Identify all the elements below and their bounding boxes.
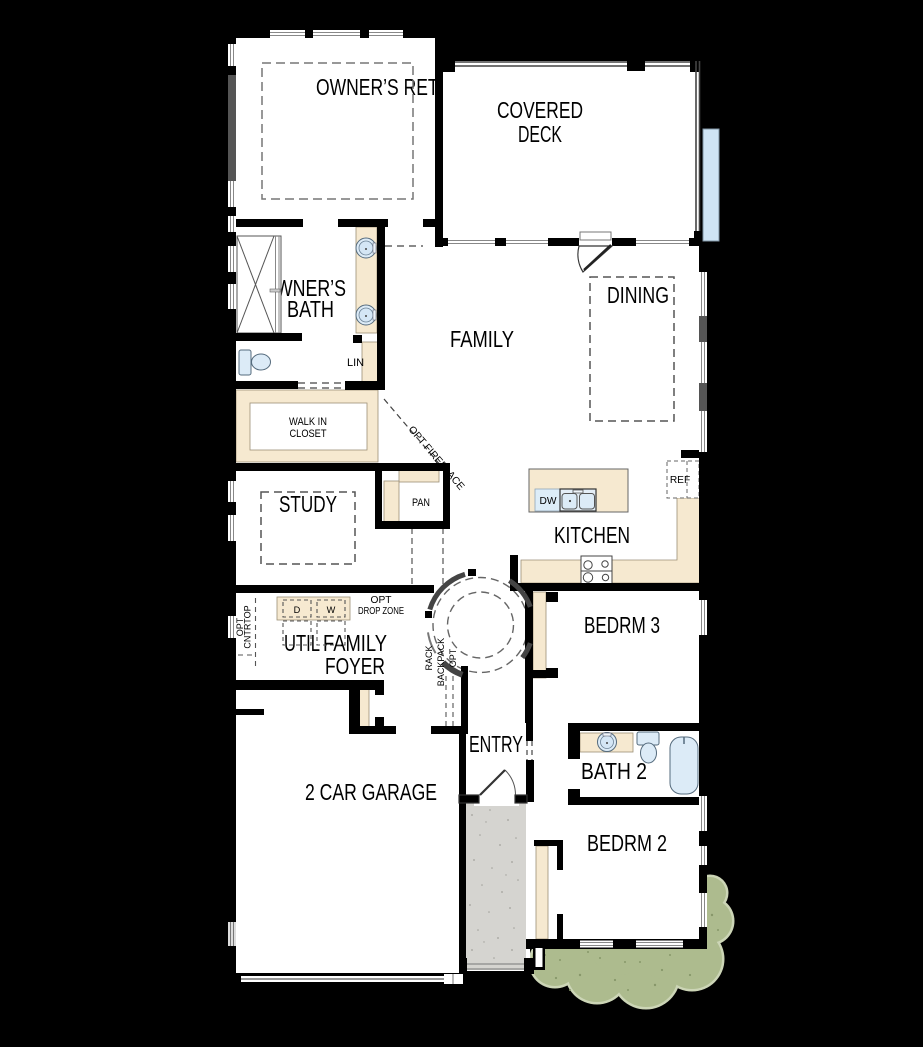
svg-text:DW: DW: [540, 496, 557, 507]
svg-text:DINING: DINING: [607, 282, 669, 308]
svg-text:CLOSET: CLOSET: [290, 428, 327, 440]
svg-text:OPT: OPT: [448, 648, 458, 667]
svg-text:D: D: [294, 605, 301, 615]
svg-text:DROP ZONE: DROP ZONE: [358, 606, 404, 617]
svg-text:DECK: DECK: [518, 121, 562, 147]
svg-text:KITCHEN: KITCHEN: [554, 522, 630, 548]
svg-text:FOYER: FOYER: [325, 653, 385, 679]
svg-text:BEDRM 3: BEDRM 3: [584, 612, 660, 638]
svg-text:PAN: PAN: [412, 497, 430, 509]
svg-text:LIN: LIN: [347, 357, 364, 369]
svg-text:REF: REF: [670, 475, 690, 486]
svg-text:BATH: BATH: [287, 296, 334, 322]
svg-text:OPT: OPT: [371, 595, 392, 606]
svg-text:FAMILY: FAMILY: [450, 326, 514, 352]
svg-text:BEDRM 2: BEDRM 2: [587, 830, 667, 856]
svg-text:RACK: RACK: [424, 645, 434, 670]
svg-text:COVERED: COVERED: [497, 97, 583, 123]
svg-text:STUDY: STUDY: [279, 491, 337, 517]
svg-text:UTIL: UTIL: [284, 630, 320, 656]
svg-text:CNTRTOP: CNTRTOP: [243, 605, 253, 648]
svg-text:W: W: [327, 605, 336, 615]
svg-text:BACKPACK: BACKPACK: [436, 638, 446, 686]
svg-text:WALK IN: WALK IN: [289, 416, 327, 428]
svg-text:BATH 2: BATH 2: [581, 758, 647, 784]
svg-text:2 CAR GARAGE: 2 CAR GARAGE: [305, 779, 437, 805]
svg-text:ENTRY: ENTRY: [469, 731, 523, 757]
